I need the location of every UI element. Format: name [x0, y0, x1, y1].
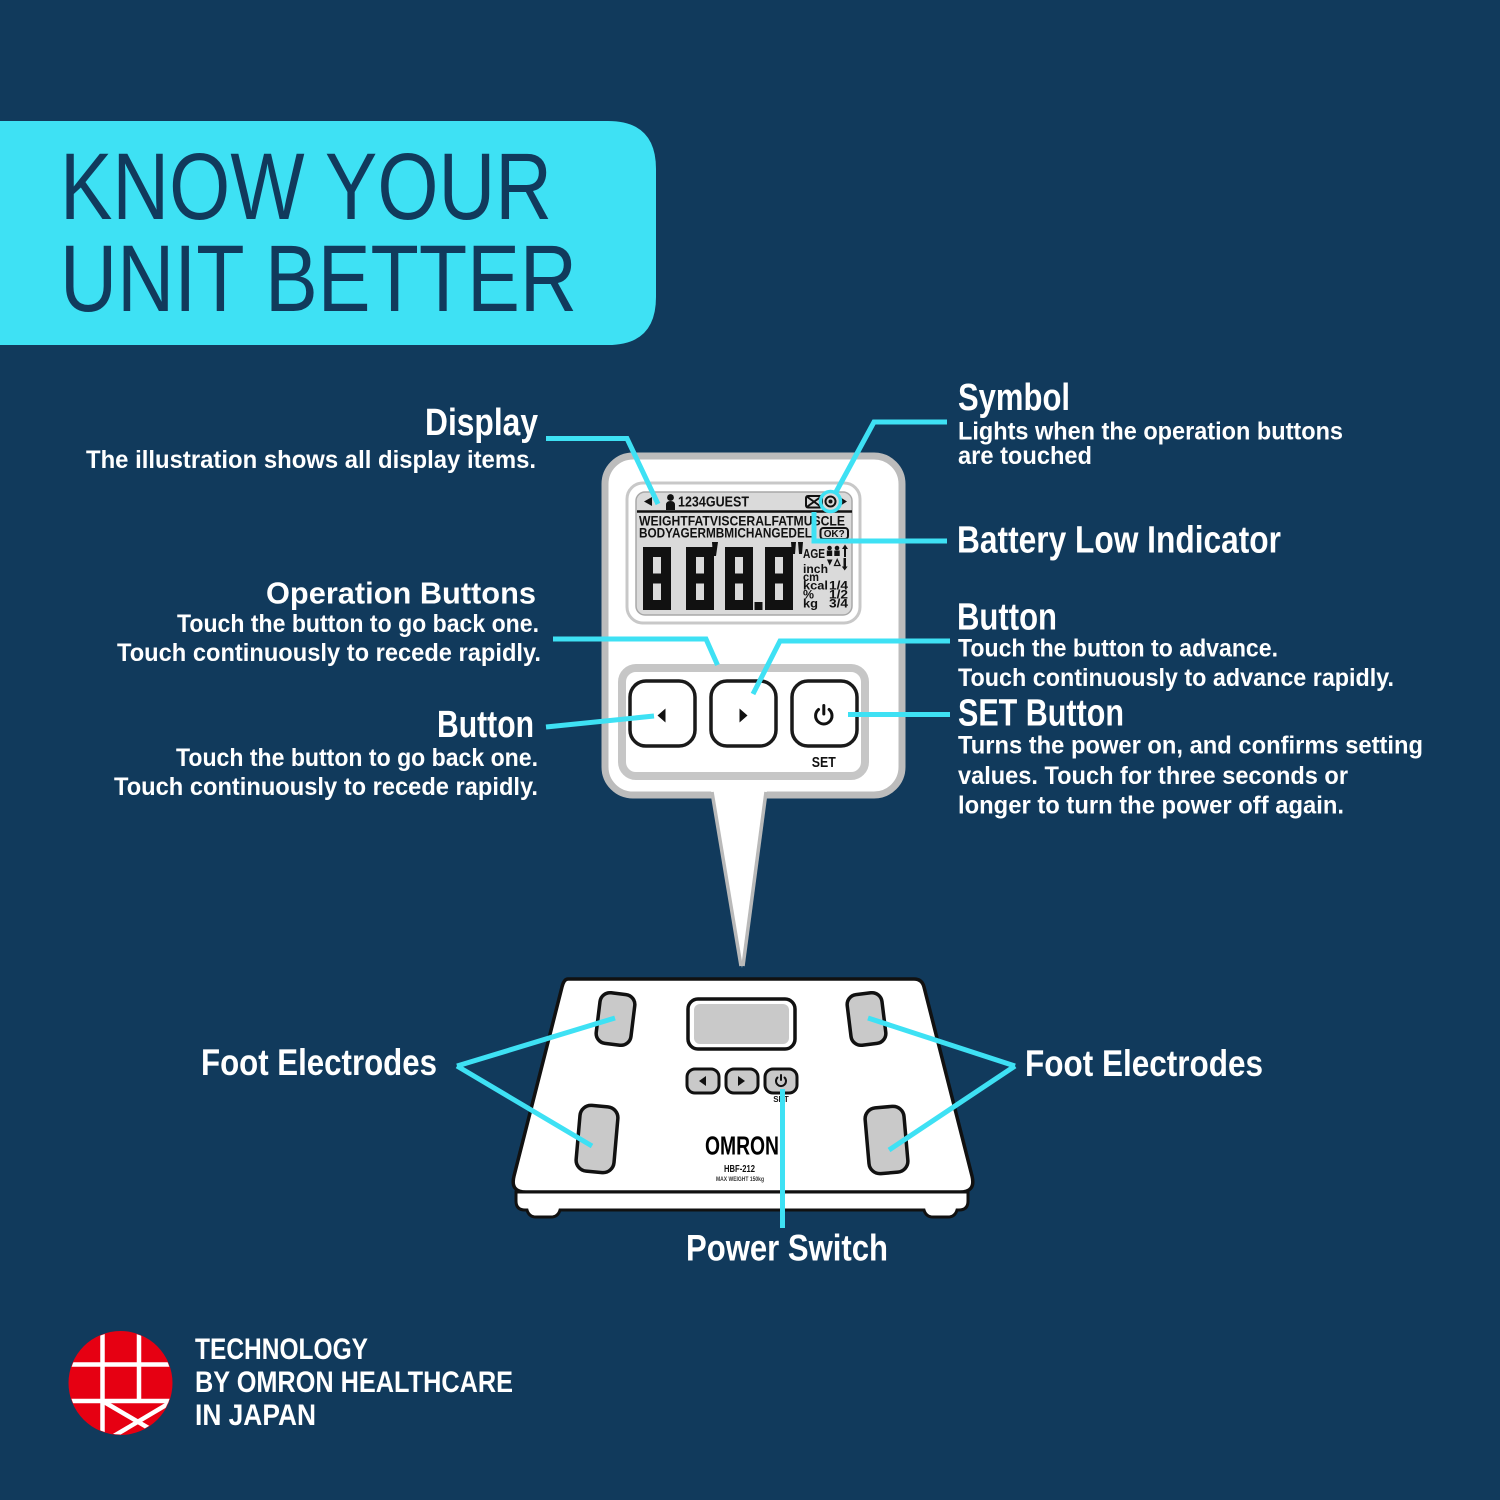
svg-text:Touch continuously to advance: Touch continuously to advance rapidly.: [958, 664, 1394, 692]
svg-text:Button: Button: [437, 704, 534, 746]
svg-text:SET Button: SET Button: [958, 693, 1124, 735]
svg-text:HBF-212: HBF-212: [724, 1164, 755, 1175]
svg-text:Symbol: Symbol: [958, 377, 1070, 419]
svg-text:TECHNOLOGY: TECHNOLOGY: [195, 1333, 368, 1366]
svg-text:Operation Buttons: Operation Buttons: [266, 576, 536, 611]
svg-text:Foot Electrodes: Foot Electrodes: [201, 1042, 437, 1083]
svg-text:OMRON: OMRON: [705, 1131, 779, 1161]
svg-text:Button: Button: [957, 597, 1057, 639]
svg-text:1234GUEST: 1234GUEST: [678, 495, 749, 511]
svg-text:Battery Low Indicator: Battery Low Indicator: [957, 520, 1281, 562]
svg-text:3/4: 3/4: [829, 597, 848, 611]
svg-text:MAX WEIGHT 150kg: MAX WEIGHT 150kg: [716, 1176, 764, 1183]
svg-text:values. Touch for three second: values. Touch for three seconds or: [958, 762, 1348, 790]
svg-text:The illustration shows all dis: The illustration shows all display items…: [86, 446, 536, 474]
svg-text:Turns the power on, and confir: Turns the power on, and confirms setting: [958, 732, 1423, 760]
svg-text:are touched: are touched: [958, 442, 1092, 470]
svg-text:Touch continuously to recede r: Touch continuously to recede rapidly.: [114, 773, 538, 801]
svg-text:Touch continuously to recede r: Touch continuously to recede rapidly.: [117, 639, 541, 667]
svg-text:Touch the button to advance.: Touch the button to advance.: [958, 635, 1278, 663]
svg-text:Foot Electrodes: Foot Electrodes: [1025, 1043, 1263, 1084]
svg-text:BY OMRON HEALTHCARE: BY OMRON HEALTHCARE: [195, 1366, 513, 1399]
svg-text:SET: SET: [812, 755, 836, 771]
svg-text:AGE: AGE: [803, 547, 825, 561]
svg-text:Power Switch: Power Switch: [686, 1228, 888, 1269]
svg-text:BODYAGERMBMICHANGEDEL: BODYAGERMBMICHANGEDEL: [639, 525, 812, 541]
svg-text:Display: Display: [425, 402, 538, 444]
svg-text:KNOW YOUR: KNOW YOUR: [60, 134, 552, 240]
svg-text:Touch the button to go back on: Touch the button to go back one.: [177, 610, 539, 638]
svg-text:IN JAPAN: IN JAPAN: [195, 1399, 316, 1432]
svg-text:Touch the button to go back on: Touch the button to go back one.: [176, 744, 538, 772]
svg-text:UNIT BETTER: UNIT BETTER: [60, 226, 577, 332]
svg-text:OK?: OK?: [824, 528, 845, 540]
svg-text:longer to turn the power off a: longer to turn the power off again.: [958, 792, 1344, 820]
svg-text:kg: kg: [803, 597, 818, 611]
